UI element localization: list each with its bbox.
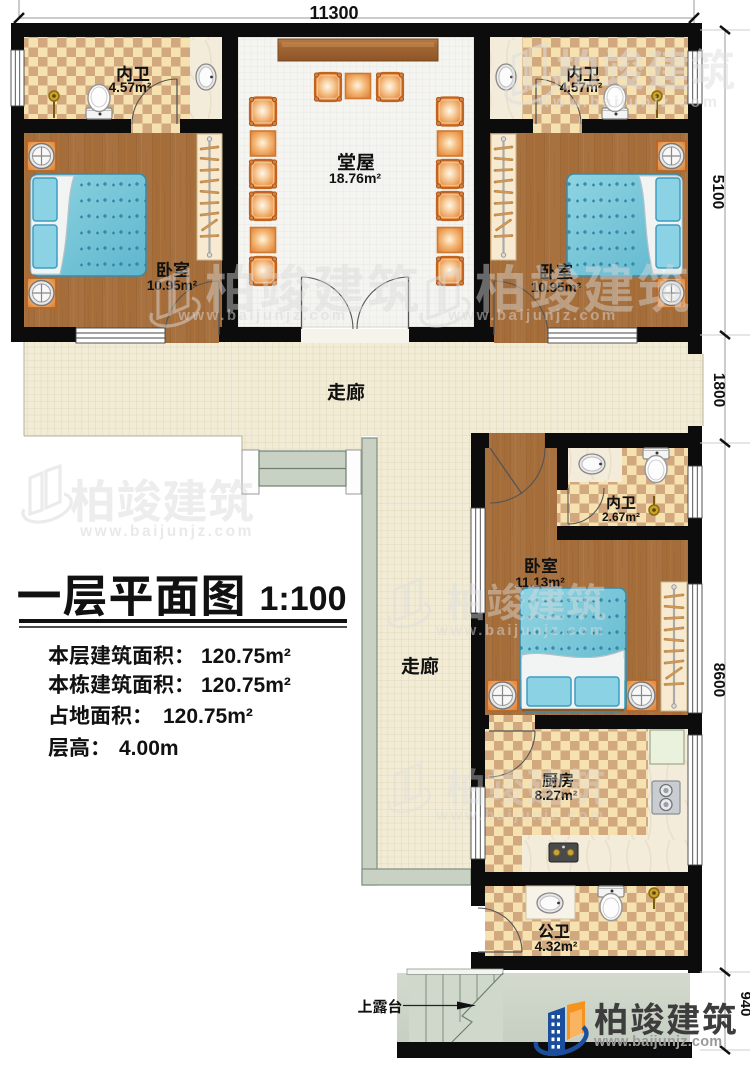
- svg-text:4.57m²: 4.57m²: [109, 80, 152, 95]
- svg-text:11300: 11300: [309, 3, 358, 23]
- svg-text:18.76m²: 18.76m²: [329, 170, 381, 186]
- svg-text:www.baijunjz.com: www.baijunjz.com: [435, 622, 605, 639]
- svg-text:4.00m: 4.00m: [119, 737, 179, 760]
- svg-text:www.baijunjz.com: www.baijunjz.com: [537, 94, 720, 111]
- svg-text:940: 940: [737, 991, 750, 1016]
- svg-text:4.32m²: 4.32m²: [535, 939, 578, 954]
- svg-text:120.75m²: 120.75m²: [201, 645, 291, 668]
- svg-text:120.75m²: 120.75m²: [163, 705, 253, 728]
- svg-text:www.baijunjz.com: www.baijunjz.com: [447, 307, 617, 324]
- svg-text:8600: 8600: [710, 663, 727, 697]
- svg-text:www.baijunjz.com: www.baijunjz.com: [435, 807, 605, 824]
- svg-text:www.baijunjz.com: www.baijunjz.com: [79, 523, 254, 540]
- svg-text:www.baijunjz.com: www.baijunjz.com: [593, 1034, 722, 1050]
- svg-text:1800: 1800: [710, 373, 727, 407]
- svg-text:1:100: 1:100: [260, 580, 347, 618]
- svg-text:2.67m²: 2.67m²: [602, 510, 640, 524]
- svg-text:120.75m²: 120.75m²: [201, 674, 291, 697]
- svg-text:5100: 5100: [709, 175, 726, 209]
- svg-text:www.baijunjz.com: www.baijunjz.com: [177, 307, 347, 324]
- svg-text:10.95m²: 10.95m²: [147, 278, 198, 293]
